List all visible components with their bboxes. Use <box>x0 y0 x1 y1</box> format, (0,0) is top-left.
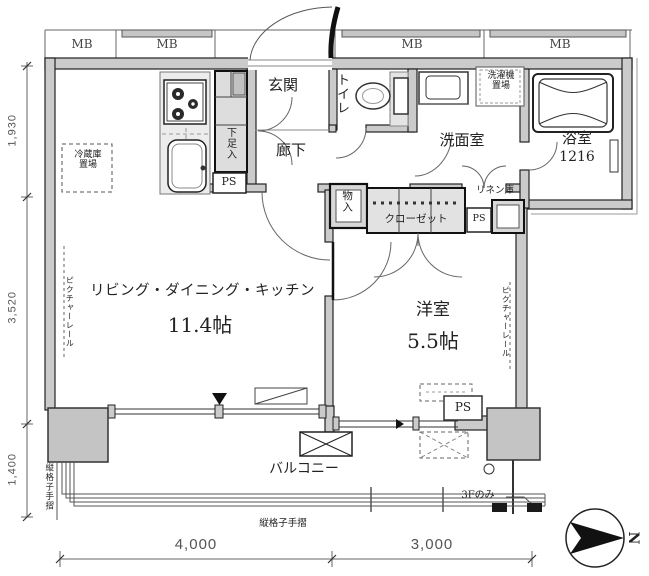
label-refrigerator-line1: 冷蔵庫 <box>74 150 101 160</box>
label-ldk: リビング・ダイニング・キッチン <box>90 283 310 300</box>
label-shoe-cabinet: 下足入 <box>224 127 236 160</box>
label-refrigerator-line2: 置場 <box>79 160 97 170</box>
label-storage-closet: 物入 <box>341 190 353 213</box>
label-refrigerator-space: 冷蔵庫 置場 <box>64 150 112 171</box>
label-washroom: 洗面室 <box>417 132 507 149</box>
ps-label-balcony: PS <box>447 401 479 415</box>
compass-north-label: N <box>625 529 641 547</box>
pillar-right <box>487 408 540 460</box>
label-washer-line2: 置場 <box>492 81 510 91</box>
floor-plan: MB MB MB MB 玄関 廊下 トイレ 洗面室 浴室 1216 洗濯機 置場… <box>0 0 649 576</box>
ps-label-kitchen: PS <box>214 176 244 189</box>
pillar-left <box>48 408 108 462</box>
label-linen-closet: リネン庫 <box>466 186 524 197</box>
furniture-symbols <box>255 384 472 404</box>
label-bathroom-size: 1216 <box>547 149 607 165</box>
label-picture-rail-right: ピクチャーレール <box>501 286 510 358</box>
storage-row <box>330 184 524 277</box>
label-closet: クローゼット <box>367 213 465 225</box>
label-western-room: 洋室 <box>393 301 473 321</box>
label-ldk-size: 11.4帖 <box>140 314 260 337</box>
dim-left-1400: 1,400 <box>7 447 20 491</box>
label-hallway: 廊下 <box>261 142 321 159</box>
mb-label-2: MB <box>142 38 192 52</box>
kitchen-counter <box>160 72 210 194</box>
mb-label-3: MB <box>387 38 437 52</box>
genkan-doors <box>255 97 330 260</box>
label-balcony: バルコニー <box>254 461 354 477</box>
dim-left-1930: 1,930 <box>7 108 20 152</box>
compass-icon <box>566 509 624 567</box>
label-picture-rail-left: ピクチャーレール <box>65 276 74 348</box>
mb-label-4: MB <box>535 38 585 52</box>
label-3f-only: 3Fのみ <box>450 490 506 502</box>
dim-bottom-3000: 3,000 <box>382 536 482 553</box>
dim-bottom-4000: 4,000 <box>146 536 246 553</box>
ps-label-linen: PS <box>467 214 491 225</box>
label-toilet: トイレ <box>333 73 348 115</box>
label-washer-space: 洗濯機 置場 <box>478 71 524 92</box>
label-washer-line1: 洗濯機 <box>487 71 514 81</box>
label-bathroom: 浴室 <box>547 130 607 147</box>
western-room-door <box>333 242 391 300</box>
mb-label-1: MB <box>57 38 107 52</box>
entrance-door <box>248 7 338 70</box>
label-lattice-handrail-bottom: 縦格子手摺 <box>253 519 313 530</box>
label-lattice-handrail-left: 縦格子手摺 <box>43 463 53 511</box>
label-entrance: 玄関 <box>253 77 313 94</box>
label-western-room-size: 5.5帖 <box>383 330 483 353</box>
dim-left-3520: 3,520 <box>7 285 20 329</box>
